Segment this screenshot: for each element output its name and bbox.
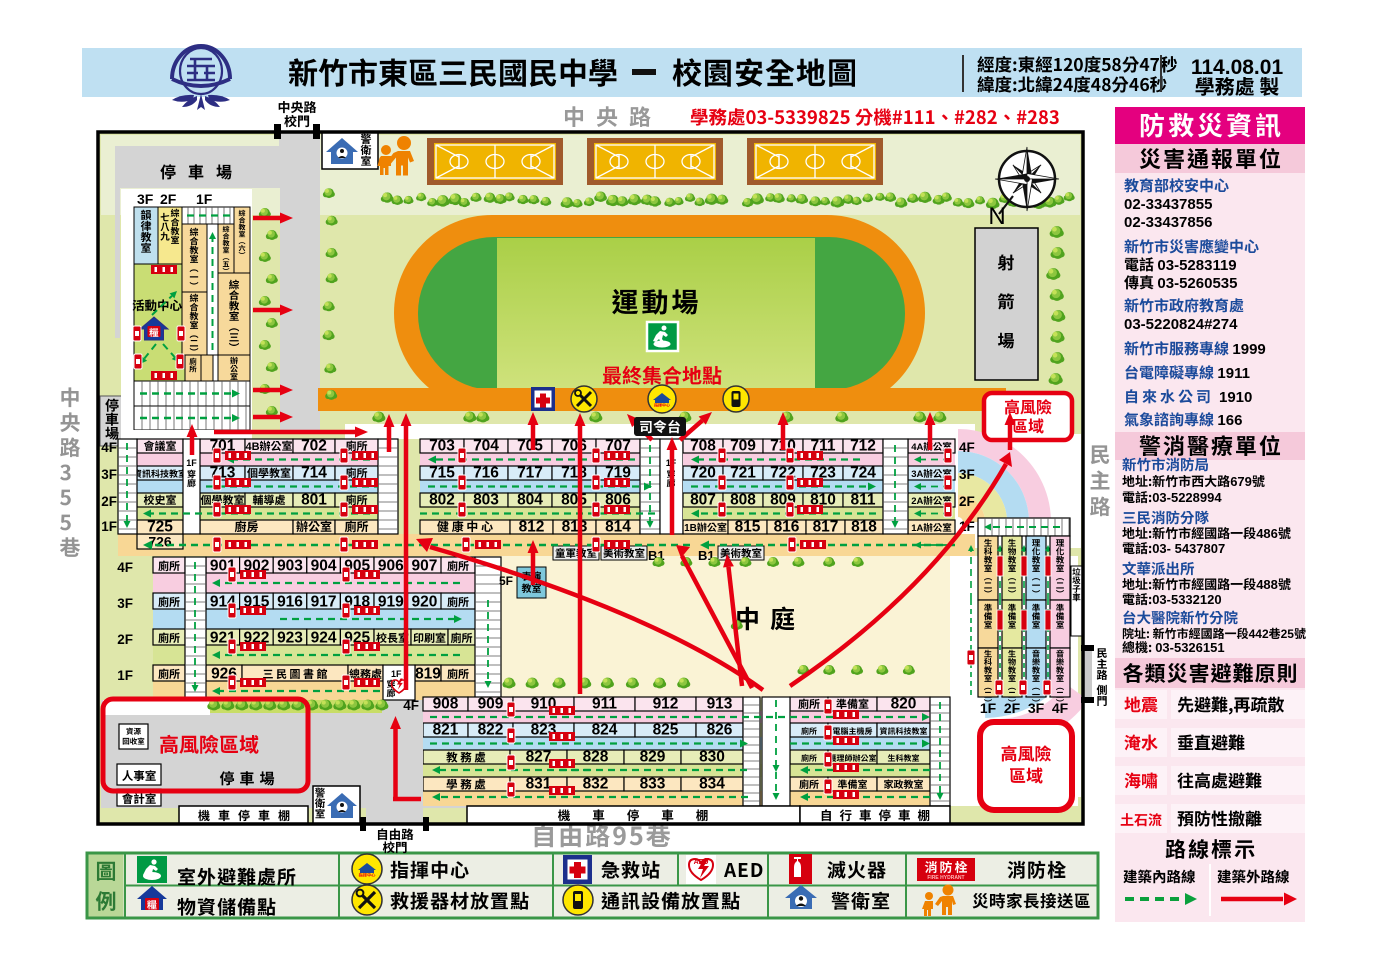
svg-text:03-5220824#274: 03-5220824#274 <box>1124 316 1238 333</box>
svg-text:2A: 2A <box>911 496 923 507</box>
svg-text:907: 907 <box>411 558 437 575</box>
svg-text:814: 814 <box>605 519 631 536</box>
svg-text:923: 923 <box>277 630 303 647</box>
svg-text:1F: 1F <box>101 519 117 534</box>
svg-text:919: 919 <box>378 594 404 611</box>
svg-text:679: 679 <box>1230 474 1252 489</box>
svg-text:166: 166 <box>1217 412 1242 429</box>
svg-text:706: 706 <box>561 438 587 455</box>
svg-text:3F: 3F <box>1028 700 1045 716</box>
svg-text:808: 808 <box>730 492 756 509</box>
svg-text:705: 705 <box>517 438 543 455</box>
svg-text:716: 716 <box>473 465 499 482</box>
svg-text:805: 805 <box>561 492 587 509</box>
svg-text:717: 717 <box>517 465 543 482</box>
svg-text:720: 720 <box>690 465 716 482</box>
svg-text:AED: AED <box>694 859 709 866</box>
svg-text:820: 820 <box>891 696 917 713</box>
svg-text:909: 909 <box>478 696 504 713</box>
svg-text:725: 725 <box>147 519 173 536</box>
svg-text:812: 812 <box>519 519 545 536</box>
svg-text:4F: 4F <box>959 440 975 455</box>
svg-text:724: 724 <box>850 465 876 482</box>
svg-text:815: 815 <box>735 519 761 536</box>
svg-text:702: 702 <box>301 438 327 455</box>
svg-text:1F: 1F <box>186 458 197 468</box>
svg-text:704: 704 <box>473 438 499 455</box>
svg-text:826: 826 <box>707 722 733 739</box>
svg-text:708: 708 <box>690 438 716 455</box>
svg-text:715: 715 <box>429 465 455 482</box>
svg-text:801: 801 <box>301 492 327 509</box>
svg-text:1F: 1F <box>391 669 402 679</box>
svg-text:818: 818 <box>851 519 877 536</box>
svg-text:4F: 4F <box>117 560 133 575</box>
svg-text:2F: 2F <box>160 191 177 207</box>
svg-text:03-5260535: 03-5260535 <box>1157 275 1237 292</box>
svg-text:02-33437856: 02-33437856 <box>1124 214 1212 231</box>
svg-text:03-5326151: 03-5326151 <box>1155 640 1224 655</box>
svg-text:829: 829 <box>640 749 666 766</box>
svg-text:N: N <box>988 203 1005 230</box>
svg-text:03-5283119: 03-5283119 <box>1157 257 1236 274</box>
svg-text:804: 804 <box>517 492 543 509</box>
svg-text:712: 712 <box>850 438 876 455</box>
svg-text:3F: 3F <box>959 467 975 482</box>
svg-text:1B: 1B <box>684 523 697 534</box>
svg-text:917: 917 <box>311 594 337 611</box>
svg-text:03-5332120: 03-5332120 <box>1152 592 1221 607</box>
svg-text:822: 822 <box>478 722 504 739</box>
svg-text:709: 709 <box>730 438 756 455</box>
svg-text:833: 833 <box>640 776 666 793</box>
svg-text:811: 811 <box>850 492 875 509</box>
svg-text:813: 813 <box>562 519 588 536</box>
svg-text:924: 924 <box>311 630 337 647</box>
svg-text:2F: 2F <box>959 494 975 509</box>
svg-text:825: 825 <box>653 722 679 739</box>
svg-text:2F: 2F <box>101 494 117 509</box>
svg-text:802: 802 <box>429 492 455 509</box>
svg-text:819: 819 <box>415 666 441 683</box>
svg-text:1A: 1A <box>911 523 923 534</box>
svg-text:1F: 1F <box>196 191 213 207</box>
svg-text:821: 821 <box>433 722 459 739</box>
svg-text:908: 908 <box>433 696 459 713</box>
svg-text:803: 803 <box>473 492 499 509</box>
svg-text:916: 916 <box>277 594 303 611</box>
svg-text:827: 827 <box>526 749 552 766</box>
svg-text:824: 824 <box>592 722 618 739</box>
svg-text:1910: 1910 <box>1219 389 1252 406</box>
svg-text:4A: 4A <box>911 442 923 453</box>
svg-text:FIRE HYDRANT: FIRE HYDRANT <box>927 875 964 881</box>
svg-text:2F: 2F <box>1004 700 1021 716</box>
svg-text:488: 488 <box>1256 577 1278 592</box>
svg-text:903: 903 <box>277 558 303 575</box>
svg-text:442: 442 <box>1249 627 1269 641</box>
svg-text:816: 816 <box>774 519 800 536</box>
svg-text:828: 828 <box>583 749 609 766</box>
svg-text:721: 721 <box>730 465 756 482</box>
svg-text:1F: 1F <box>980 700 997 716</box>
svg-text:703: 703 <box>429 438 455 455</box>
svg-text:807: 807 <box>690 492 716 509</box>
svg-text:03-5228994: 03-5228994 <box>1152 490 1222 505</box>
svg-text:831: 831 <box>526 776 552 793</box>
svg-text:4F: 4F <box>101 440 117 455</box>
svg-text:5F: 5F <box>499 574 513 588</box>
svg-text:486: 486 <box>1256 526 1278 541</box>
svg-text:1999: 1999 <box>1232 341 1265 358</box>
svg-text:832: 832 <box>583 776 609 793</box>
svg-text:03- 5437807: 03- 5437807 <box>1152 541 1225 556</box>
svg-text:25: 25 <box>1281 627 1295 641</box>
svg-text:1911: 1911 <box>1217 365 1250 382</box>
svg-text:913: 913 <box>707 696 733 713</box>
svg-text:912: 912 <box>653 696 679 713</box>
svg-text:3F: 3F <box>117 596 133 611</box>
svg-text:718: 718 <box>561 465 587 482</box>
svg-text:114.08.01: 114.08.01 <box>1191 56 1284 79</box>
svg-text:904: 904 <box>311 558 337 575</box>
svg-text:920: 920 <box>411 594 437 611</box>
svg-text:4F: 4F <box>403 698 419 713</box>
svg-text:817: 817 <box>813 519 839 536</box>
svg-text:714: 714 <box>301 465 327 482</box>
svg-text:02-33437855: 02-33437855 <box>1124 196 1212 213</box>
svg-text:911: 911 <box>592 696 617 713</box>
svg-text:834: 834 <box>699 776 725 793</box>
svg-text:3F: 3F <box>101 467 117 482</box>
svg-text:2F: 2F <box>117 632 133 647</box>
svg-text:3A: 3A <box>911 469 923 480</box>
svg-text:830: 830 <box>699 749 725 766</box>
svg-text:906: 906 <box>378 558 404 575</box>
svg-text:1F: 1F <box>117 668 133 683</box>
svg-text:4F: 4F <box>1052 700 1069 716</box>
svg-text:3F: 3F <box>137 191 154 207</box>
